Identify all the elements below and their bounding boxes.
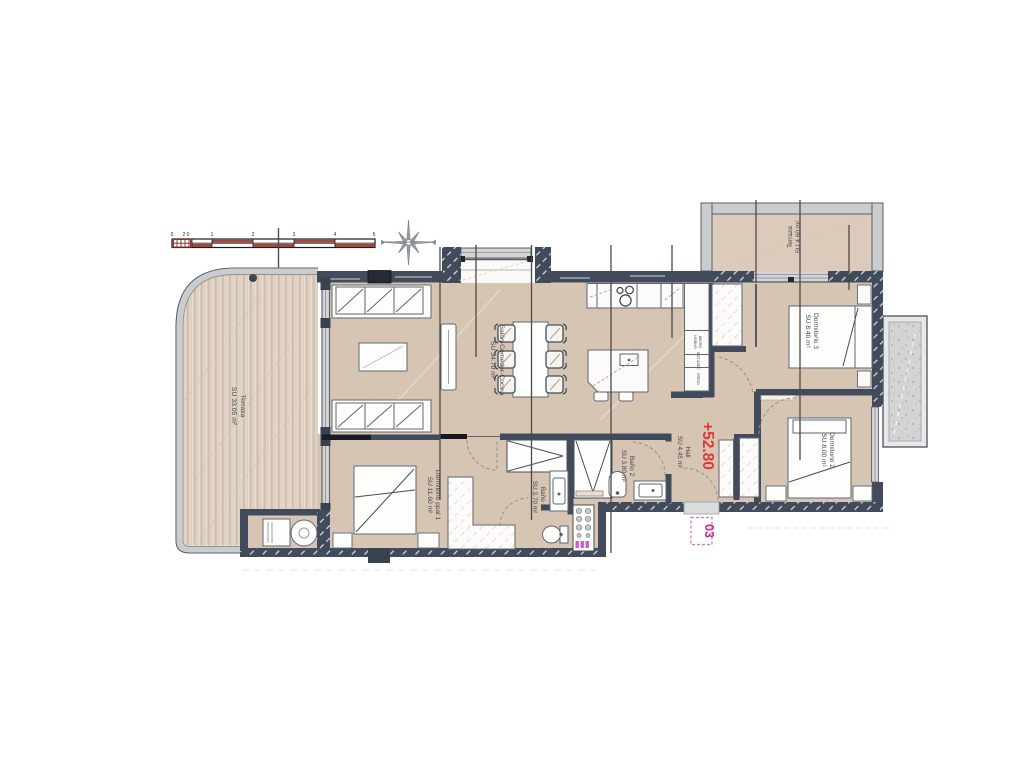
svg-text:Terraza: Terraza <box>239 395 246 418</box>
svg-text:SU 11.60 m²: SU 11.60 m² <box>426 477 433 514</box>
svg-text:SU 3.80 m²: SU 3.80 m² <box>620 450 627 482</box>
svg-text:SU 33.05 m²: SU 33.05 m² <box>230 387 237 426</box>
svg-text:MICRO: MICRO <box>698 336 702 348</box>
svg-text:Dormitorio 2: Dormitorio 2 <box>828 432 835 468</box>
svg-text:HORNO: HORNO <box>693 335 697 349</box>
svg-text:Baño 1: Baño 1 <box>539 487 546 508</box>
svg-text:FRIGO: FRIGO <box>696 373 700 385</box>
svg-text:+52.80: +52.80 <box>699 422 716 470</box>
svg-text:Terraza: Terraza <box>787 226 794 248</box>
svg-text:2: 2 <box>252 232 255 238</box>
svg-text:Salón-Comedor-Cocina: Salón-Comedor-Cocina <box>498 324 505 395</box>
svg-text:SU 4.60 m²: SU 4.60 m² <box>795 220 802 254</box>
svg-text:03: 03 <box>702 524 716 538</box>
svg-text:5: 5 <box>373 232 376 238</box>
svg-text:BOT.&SEC: BOT.&SEC <box>696 352 700 370</box>
svg-text:Dormitorio 3: Dormitorio 3 <box>812 313 819 349</box>
svg-text:0: 0 <box>171 232 174 238</box>
svg-text:2 0: 2 0 <box>183 232 190 238</box>
svg-text:1: 1 <box>211 232 214 238</box>
svg-text:Hall: Hall <box>684 446 691 457</box>
svg-text:3: 3 <box>293 232 296 238</box>
svg-text:4: 4 <box>334 232 337 238</box>
svg-text:SU 8.40 m²: SU 8.40 m² <box>804 314 811 348</box>
svg-text:SU 34.70 m²: SU 34.70 m² <box>489 341 496 380</box>
svg-text:SU 8.00 m²: SU 8.00 m² <box>820 433 827 467</box>
svg-text:Baño 2: Baño 2 <box>628 456 635 477</box>
svg-text:SU 4.45 m²: SU 4.45 m² <box>676 436 683 468</box>
